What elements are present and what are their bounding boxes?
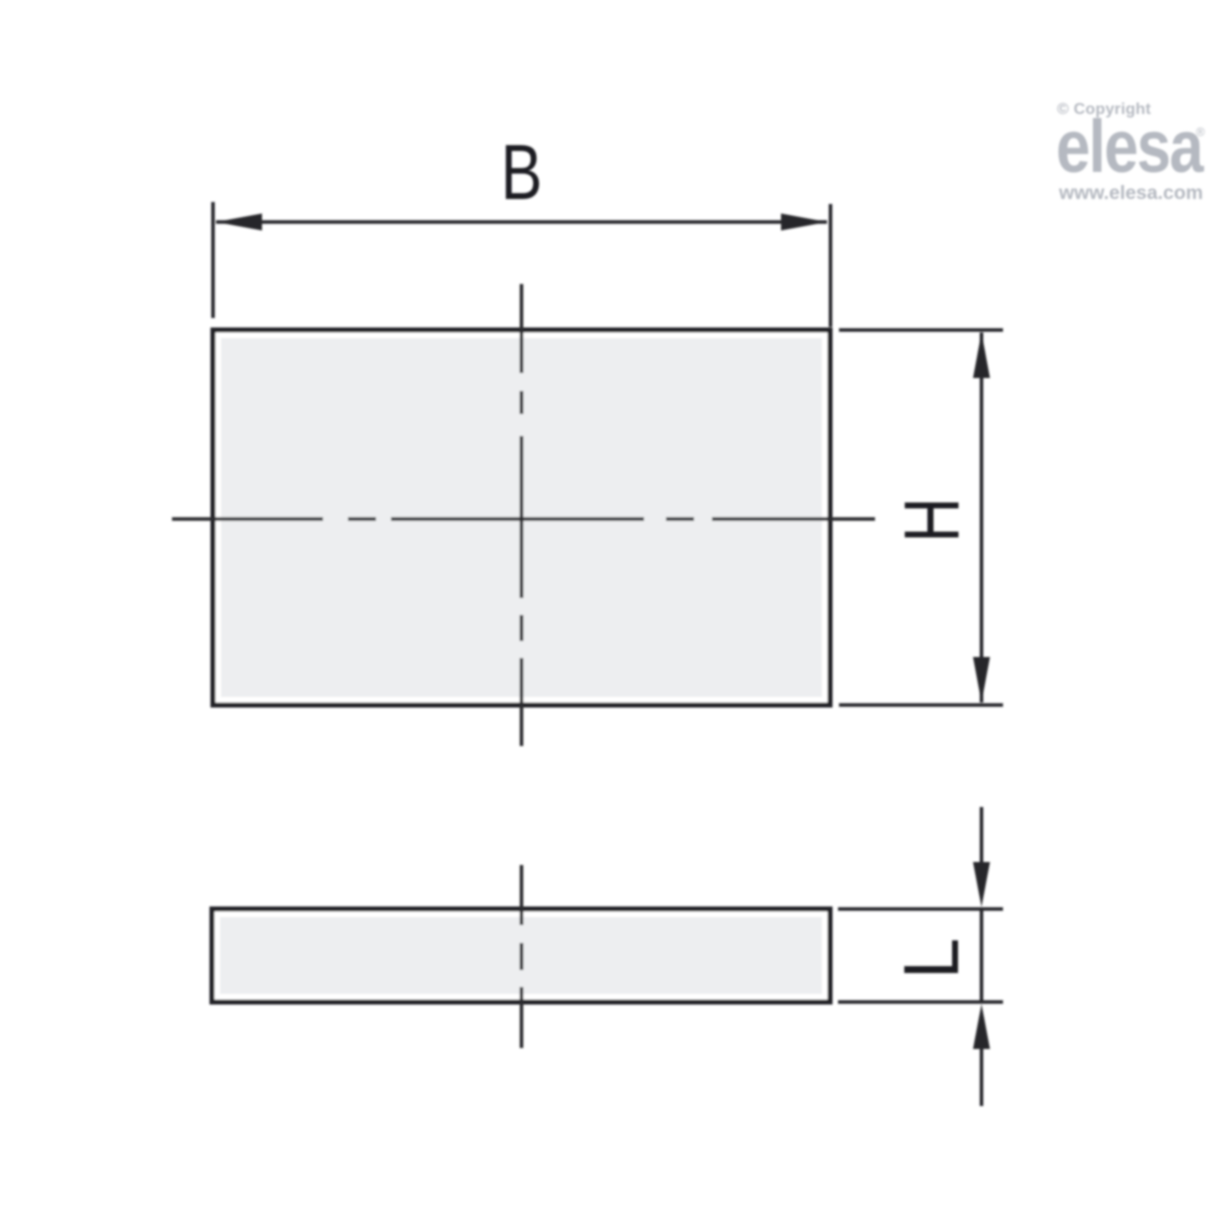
svg-text:B: B — [501, 128, 543, 215]
svg-text:H: H — [888, 497, 975, 542]
svg-text:www.elesa.com: www.elesa.com — [1058, 183, 1203, 204]
svg-text:®: ® — [1196, 125, 1205, 139]
svg-text:elesa: elesa — [1056, 105, 1204, 188]
svg-text:L: L — [888, 938, 975, 979]
